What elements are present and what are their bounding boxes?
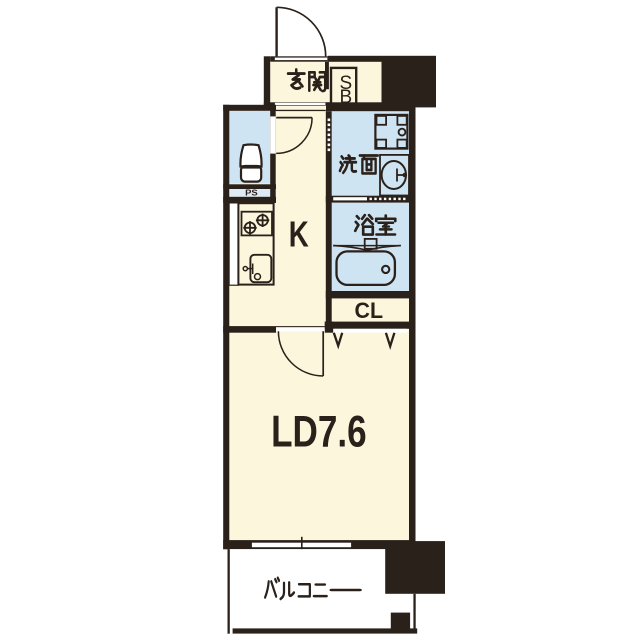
svg-text:CL: CL xyxy=(355,298,384,323)
svg-text:LD7.6: LD7.6 xyxy=(271,407,367,456)
svg-text:PS: PS xyxy=(245,189,258,198)
svg-text:K: K xyxy=(289,213,309,254)
